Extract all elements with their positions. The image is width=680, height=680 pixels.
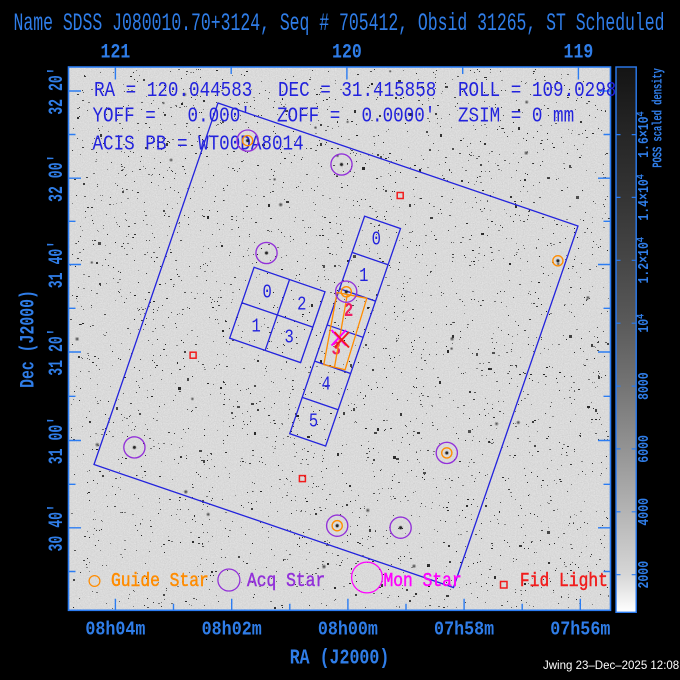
svg-text:08h02m: 08h02m [202,620,262,641]
svg-text:31 40': 31 40' [47,241,70,288]
svg-text:121: 121 [101,40,131,64]
svg-text:ACIS PB = WT00DA8014: ACIS PB = WT00DA8014 [93,132,304,156]
svg-text:2: 2 [297,294,306,316]
svg-text:30 40': 30 40' [47,504,70,551]
svg-text:YOFF = 0.000': YOFF = 0.000' [93,104,251,128]
svg-text:Dec (J2000): Dec (J2000) [18,290,41,388]
svg-text:Fid Light: Fid Light [520,571,608,593]
svg-text:1.2×104: 1.2×104 [634,237,653,284]
svg-text:07h56m: 07h56m [550,620,610,641]
svg-text:POSS scaled density: POSS scaled density [650,68,667,168]
svg-text:RA (J2000): RA (J2000) [290,646,390,671]
svg-text:ZOFF = 0.0000': ZOFF = 0.0000' [277,104,435,128]
svg-text:31 20': 31 20' [47,328,70,375]
svg-text:119: 119 [564,40,594,64]
svg-text:Name SDSS J080010.70+3124, Seq: Name SDSS J080010.70+3124, Seq # 705412,… [14,11,665,38]
svg-text:DEC = 31.415858: DEC = 31.415858 [278,78,436,102]
svg-text:08h00m: 08h00m [318,620,378,641]
svg-text:07h58m: 07h58m [434,620,494,641]
svg-text:6000: 6000 [637,435,654,463]
svg-text:4: 4 [321,374,330,396]
svg-text:5: 5 [309,411,318,433]
svg-text:Guide Star: Guide Star [111,571,209,593]
svg-text:0: 0 [372,229,381,251]
svg-text:120: 120 [332,40,362,64]
svg-text:8000: 8000 [637,372,654,400]
svg-text:31 00': 31 00' [47,417,70,464]
svg-text:1: 1 [359,265,368,287]
svg-text:08h04m: 08h04m [85,620,145,641]
svg-text:4000: 4000 [637,498,654,526]
svg-text:32 00': 32 00' [47,154,70,201]
svg-text:1.4×104: 1.4×104 [634,174,653,221]
svg-text:2000: 2000 [637,561,654,589]
svg-text:0: 0 [262,282,271,304]
svg-text:RA = 120.044583: RA = 120.044583 [94,78,252,102]
svg-text:32 20': 32 20' [47,67,70,114]
svg-text:Jwing 23–Dec–2025 12:08: Jwing 23–Dec–2025 12:08 [543,660,679,672]
svg-text:ZSIM = 0 mm: ZSIM = 0 mm [458,104,574,128]
svg-text:3: 3 [284,327,293,349]
svg-text:ROLL = 109.0298: ROLL = 109.0298 [458,78,616,102]
svg-text:1: 1 [251,316,260,338]
svg-text:Acq Star: Acq Star [247,571,325,593]
svg-text:Mon Star: Mon Star [384,571,462,593]
